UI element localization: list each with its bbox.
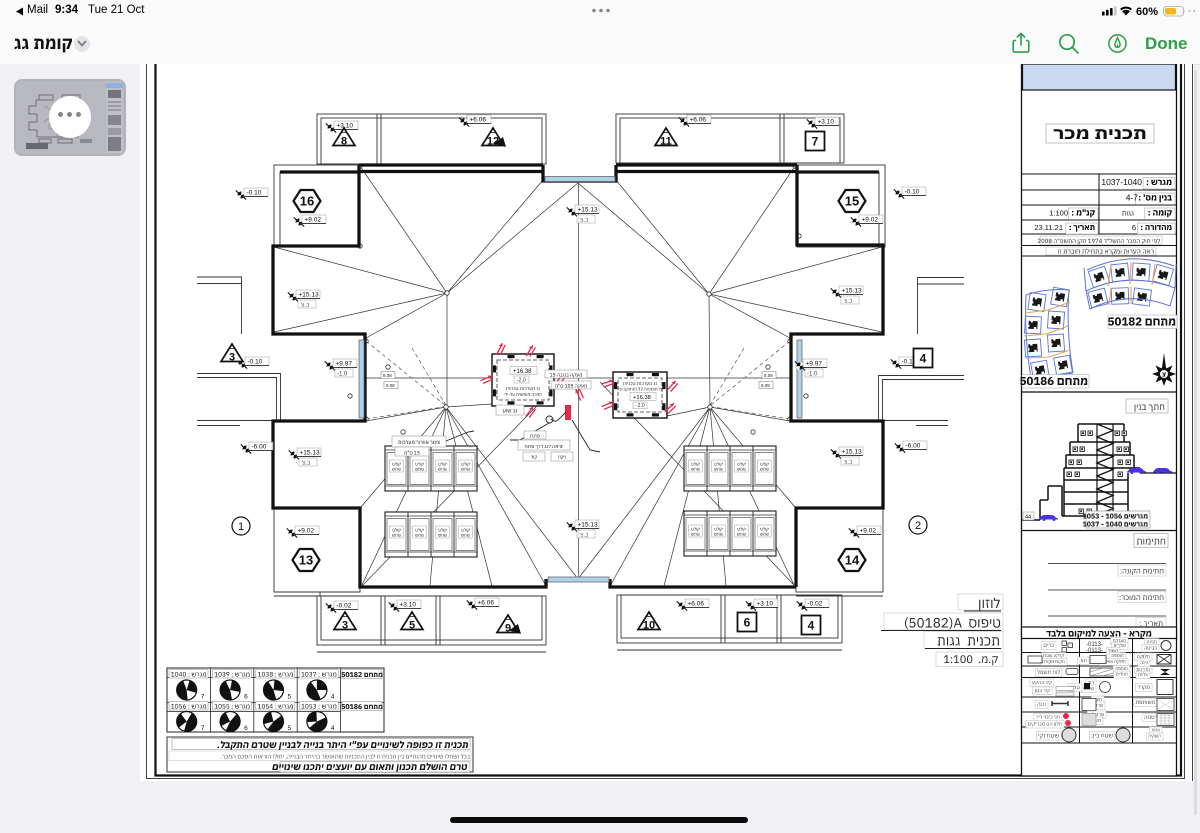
svg-text:+16.38: +16.38	[513, 369, 532, 375]
svg-text:7: 7	[812, 135, 819, 149]
svg-text:10: 10	[643, 620, 655, 632]
svg-text:+6.06: +6.06	[688, 601, 705, 608]
svg-text:+15.13: +15.13	[578, 522, 598, 529]
svg-text:+9.02: +9.02	[298, 528, 315, 535]
svg-text:13: 13	[299, 553, 313, 568]
svg-text:8: 8	[341, 136, 347, 148]
svg-text:+16.38: +16.38	[633, 395, 651, 401]
svg-text:+9.97: +9.97	[806, 361, 823, 368]
svg-text:4: 4	[808, 619, 815, 633]
svg-text:+9.02: +9.02	[862, 217, 879, 224]
svg-text:7: 7	[201, 694, 205, 701]
svg-text:11: 11	[660, 136, 672, 148]
svg-text:+9.02: +9.02	[860, 528, 877, 535]
svg-text:+15.13: +15.13	[842, 449, 862, 456]
svg-text:5: 5	[288, 694, 292, 701]
svg-text:60%: 60%	[1136, 6, 1158, 18]
svg-text:44: 44	[1025, 515, 1031, 521]
svg-text:-0.02: -0.02	[337, 603, 352, 610]
svg-text:4: 4	[331, 725, 335, 732]
svg-text:4: 4	[920, 352, 927, 366]
svg-text:+15.13: +15.13	[842, 288, 862, 295]
svg-text:+15.13: +15.13	[300, 450, 320, 457]
svg-text:3: 3	[342, 620, 348, 632]
svg-text:-0113-: -0113-	[1086, 648, 1103, 654]
svg-text:6: 6	[744, 616, 751, 630]
svg-text:8.08: 8.08	[761, 383, 770, 388]
svg-text:6: 6	[244, 725, 248, 732]
svg-text:-2.0: -2.0	[517, 378, 526, 384]
svg-text:+15.13: +15.13	[578, 207, 598, 214]
svg-text:6: 6	[1132, 223, 1136, 232]
svg-text:+3.10: +3.10	[818, 119, 835, 126]
svg-text:+6.06: +6.06	[478, 600, 495, 607]
svg-text:9: 9	[505, 623, 511, 635]
svg-text:5: 5	[409, 620, 415, 632]
svg-text:2: 2	[915, 520, 921, 532]
svg-text:-0.02: -0.02	[808, 601, 823, 608]
svg-text:+6.06: +6.06	[470, 117, 487, 124]
svg-text:16: 16	[300, 194, 314, 209]
svg-text:-6.00: -6.00	[252, 444, 267, 451]
svg-text:-0.10: -0.10	[248, 359, 263, 366]
svg-text:+15.13: +15.13	[299, 292, 319, 299]
svg-text:+3.10: +3.10	[757, 601, 774, 608]
svg-text:7: 7	[201, 725, 205, 732]
svg-text:1037-1040: 1037-1040	[1101, 177, 1142, 187]
svg-text:8.08: 8.08	[383, 373, 392, 378]
svg-text:3: 3	[229, 352, 235, 364]
svg-text:1: 1	[238, 521, 244, 533]
svg-text:23.11.21: 23.11.21	[1034, 223, 1063, 232]
svg-text:5: 5	[288, 725, 292, 732]
svg-text:-1.0: -1.0	[807, 372, 818, 378]
svg-text:6: 6	[244, 694, 248, 701]
svg-text:-0.10: -0.10	[905, 189, 920, 196]
svg-text:-6.00: -6.00	[906, 443, 921, 450]
svg-text:+9.97: +9.97	[336, 361, 353, 368]
svg-text:14: 14	[845, 553, 860, 568]
svg-text:+6.06: +6.06	[690, 117, 707, 124]
svg-text:4: 4	[331, 694, 335, 701]
svg-text:-1.0: -1.0	[337, 372, 348, 378]
svg-text:8.08: 8.08	[764, 373, 773, 378]
svg-text:-0.10: -0.10	[247, 190, 262, 197]
svg-text:4-7: 4-7	[1126, 193, 1139, 203]
svg-text:1:100: 1:100	[1049, 209, 1068, 218]
svg-text:+9.02: +9.02	[305, 217, 322, 224]
svg-text:+3.10: +3.10	[400, 602, 417, 609]
svg-text:15: 15	[845, 194, 859, 209]
svg-text:-2.0: -2.0	[636, 403, 645, 409]
svg-text:8.08: 8.08	[386, 383, 395, 388]
